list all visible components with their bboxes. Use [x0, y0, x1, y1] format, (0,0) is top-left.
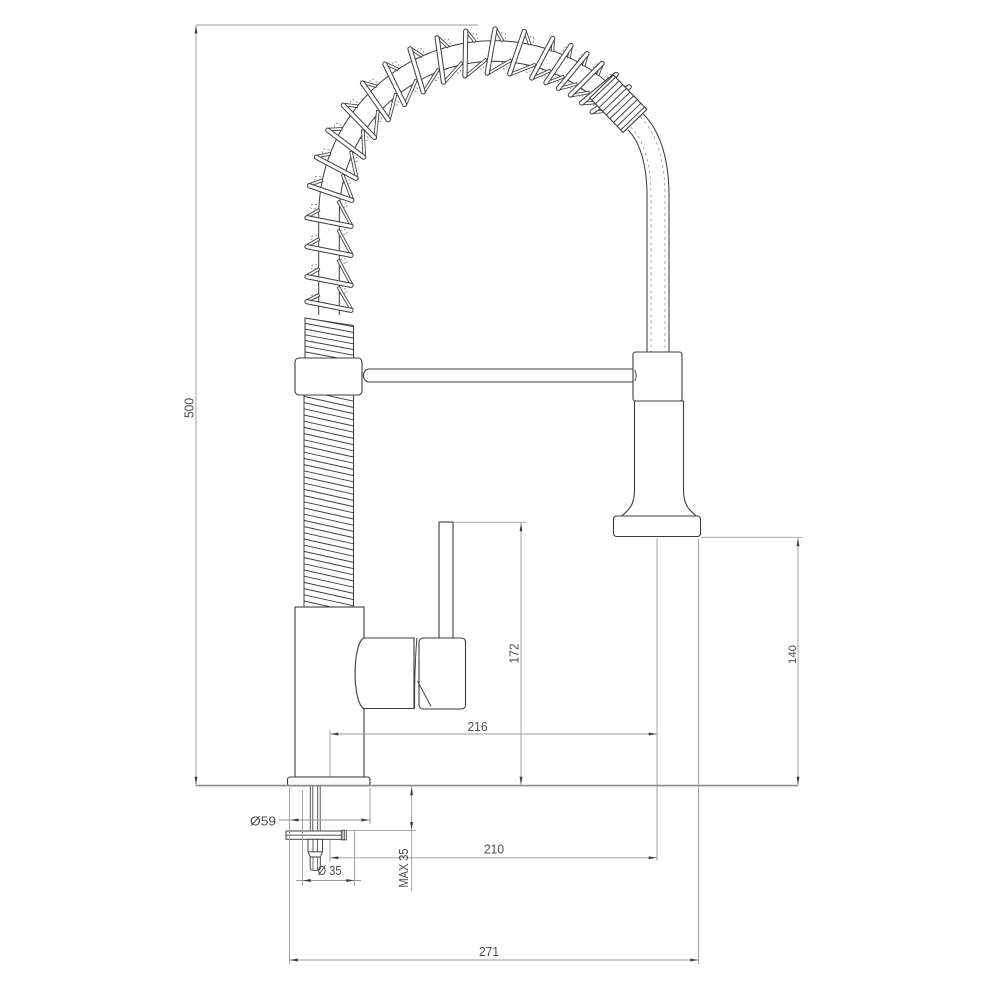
svg-text:210: 210 — [484, 842, 504, 857]
svg-text:MAX 35: MAX 35 — [396, 849, 411, 888]
svg-text:500: 500 — [182, 398, 197, 418]
svg-text:216: 216 — [468, 719, 488, 734]
svg-text:271: 271 — [479, 944, 499, 959]
svg-text:140: 140 — [787, 645, 799, 664]
svg-text:172: 172 — [507, 644, 522, 664]
svg-text:Ø 35: Ø 35 — [318, 863, 342, 878]
svg-text:Ø59: Ø59 — [250, 814, 276, 829]
